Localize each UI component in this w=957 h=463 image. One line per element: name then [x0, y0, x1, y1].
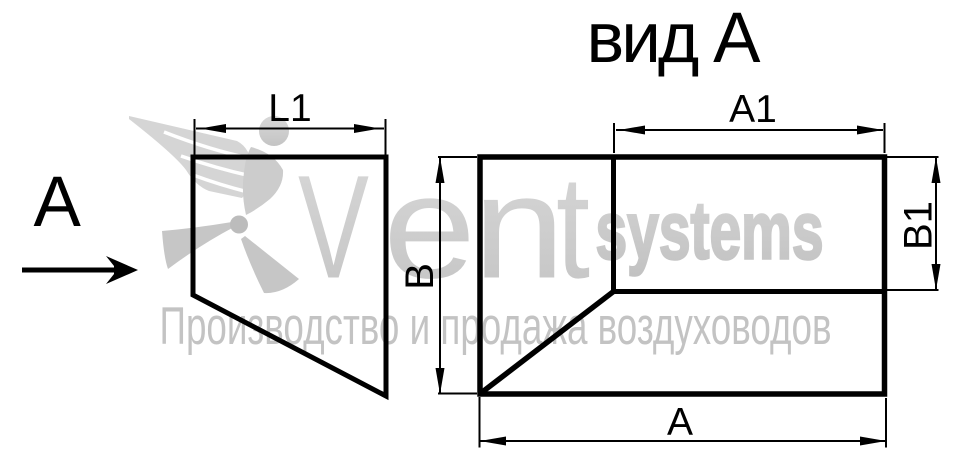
svg-text:A: A	[34, 163, 82, 242]
svg-text:A: A	[667, 401, 693, 444]
svg-text:L1: L1	[268, 87, 311, 130]
svg-text:t: t	[556, 146, 590, 310]
svg-text:V: V	[298, 146, 369, 310]
svg-text:systems: systems	[596, 186, 824, 277]
svg-text:A1: A1	[729, 88, 777, 131]
svg-text:B1: B1	[897, 201, 941, 250]
svg-text:Производство и продажа воздухо: Производство и продажа воздуховодов	[160, 297, 832, 356]
svg-text:B: B	[398, 263, 442, 290]
svg-text:n: n	[473, 146, 565, 310]
svg-text:вид А: вид А	[587, 0, 762, 78]
